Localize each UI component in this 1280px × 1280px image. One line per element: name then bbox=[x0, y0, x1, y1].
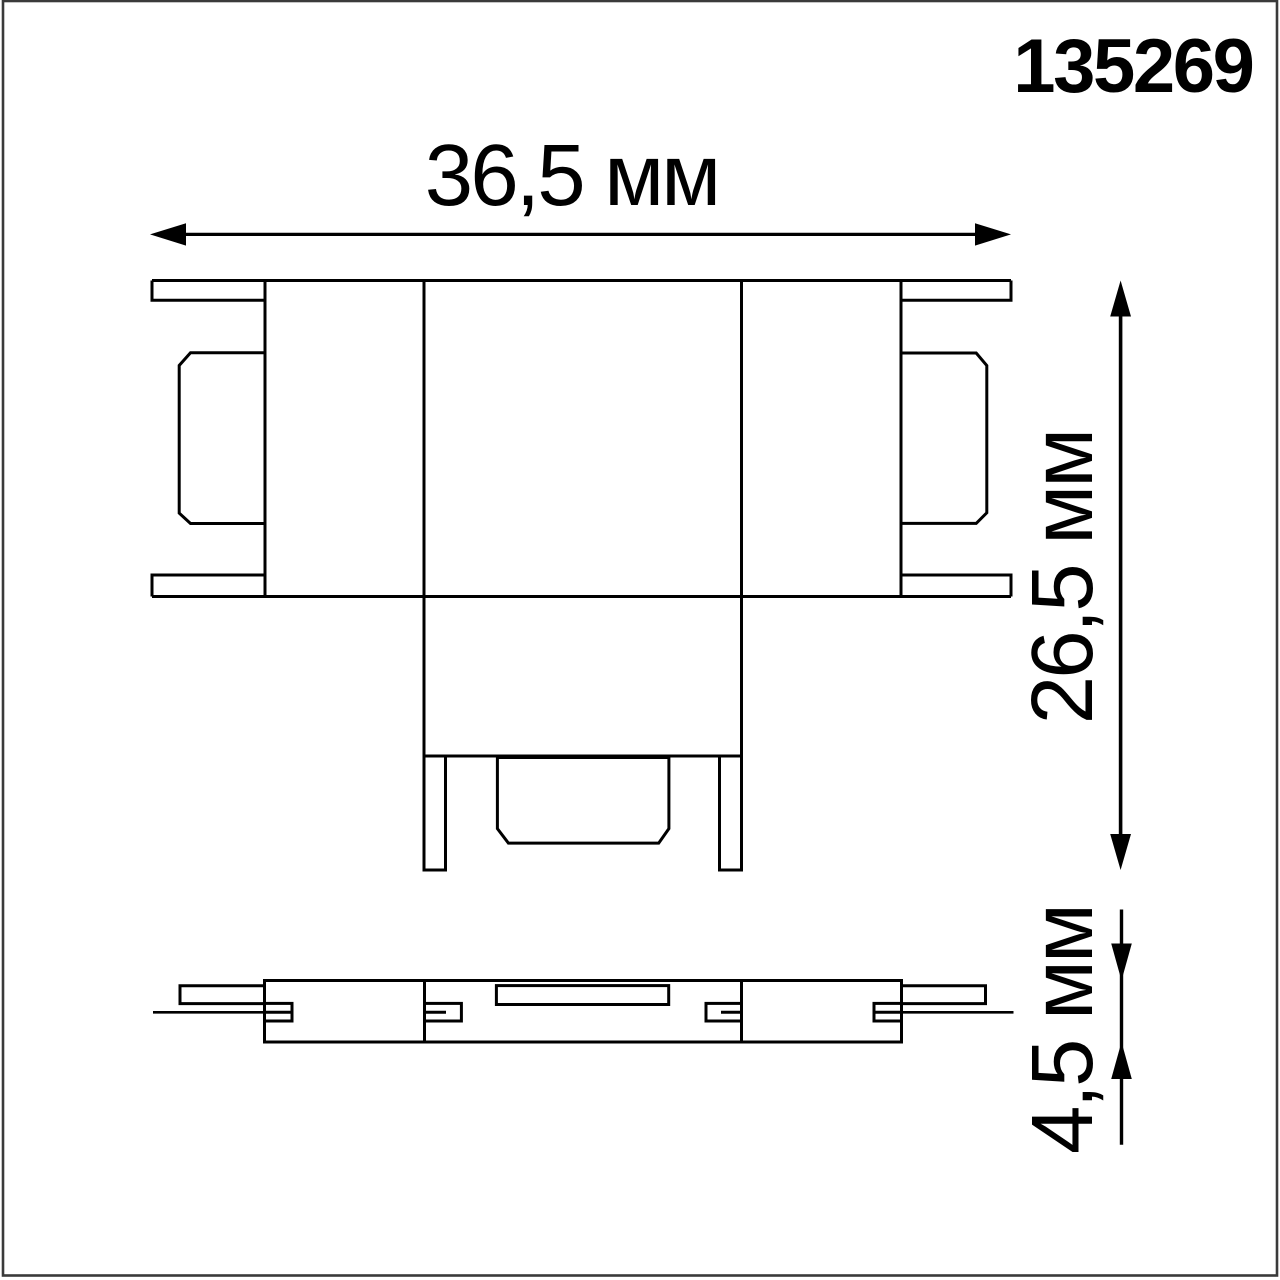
svg-text:26,5 мм: 26,5 мм bbox=[1014, 431, 1111, 725]
svg-text:4,5 мм: 4,5 мм bbox=[1014, 906, 1111, 1154]
svg-text:36,5 мм: 36,5 мм bbox=[425, 127, 719, 224]
svg-text:135269: 135269 bbox=[1013, 24, 1252, 109]
